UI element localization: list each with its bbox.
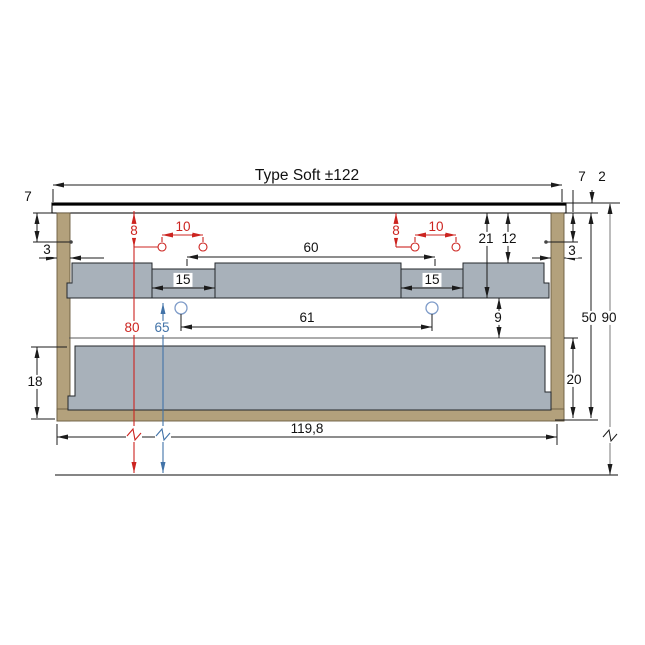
left-post bbox=[57, 213, 70, 421]
drawing-geometry bbox=[0, 0, 645, 645]
technical-drawing-canvas: Type Soft ±122 7 3 8 10 60 8 10 21 12 7 … bbox=[0, 0, 645, 645]
right-ref-dot bbox=[544, 240, 548, 244]
left-ref-dot bbox=[69, 240, 73, 244]
upper-right-block bbox=[463, 263, 549, 298]
dim-label-left-3: 3 bbox=[41, 243, 53, 257]
bottom-bar bbox=[57, 409, 564, 421]
dim-label-left-7: 7 bbox=[22, 190, 34, 204]
dim-label-50: 50 bbox=[579, 311, 598, 325]
dim-label-90: 90 bbox=[599, 311, 618, 325]
red-hole-right-1 bbox=[411, 243, 419, 251]
dim-label-red-80: 80 bbox=[122, 321, 141, 335]
red-hole-left-1 bbox=[158, 243, 166, 251]
dim-label-right-7: 7 bbox=[576, 170, 588, 184]
dim-label-right-2: 2 bbox=[596, 170, 608, 184]
title-label: Type Soft ±122 bbox=[253, 168, 361, 184]
dim-label-bottom-width: 119,8 bbox=[289, 422, 326, 436]
dim-label-20: 20 bbox=[564, 373, 583, 387]
dim-label-15-right: 15 bbox=[422, 273, 441, 287]
dim-label-red-8-left: 8 bbox=[128, 224, 140, 238]
dim-label-61: 61 bbox=[297, 311, 316, 325]
dim-label-red-10-left: 10 bbox=[173, 220, 192, 234]
blue-hole-right bbox=[426, 302, 438, 314]
red-hole-left-2 bbox=[199, 243, 207, 251]
dim-label-blue-65: 65 bbox=[152, 321, 171, 335]
dim-label-red-10-right: 10 bbox=[426, 220, 445, 234]
dim-label-right-3: 3 bbox=[566, 244, 578, 258]
dim-label-9: 9 bbox=[492, 311, 504, 325]
right-post bbox=[551, 213, 564, 421]
dim-label-red-8-right: 8 bbox=[390, 224, 402, 238]
upper-shelf-blocks bbox=[67, 263, 549, 298]
blue-hole-left bbox=[175, 302, 187, 314]
dimensions-ink bbox=[31, 185, 620, 475]
upper-center-block bbox=[215, 263, 401, 298]
dim-label-60: 60 bbox=[301, 241, 320, 255]
dim-label-15-left: 15 bbox=[173, 273, 192, 287]
dim-label-12: 12 bbox=[499, 232, 518, 246]
dim-label-18: 18 bbox=[25, 375, 44, 389]
upper-left-block bbox=[67, 263, 152, 298]
bottom-panel bbox=[68, 346, 551, 410]
red-hole-right-2 bbox=[452, 243, 460, 251]
break-symbols bbox=[126, 426, 618, 443]
dim-label-21: 21 bbox=[476, 232, 495, 246]
